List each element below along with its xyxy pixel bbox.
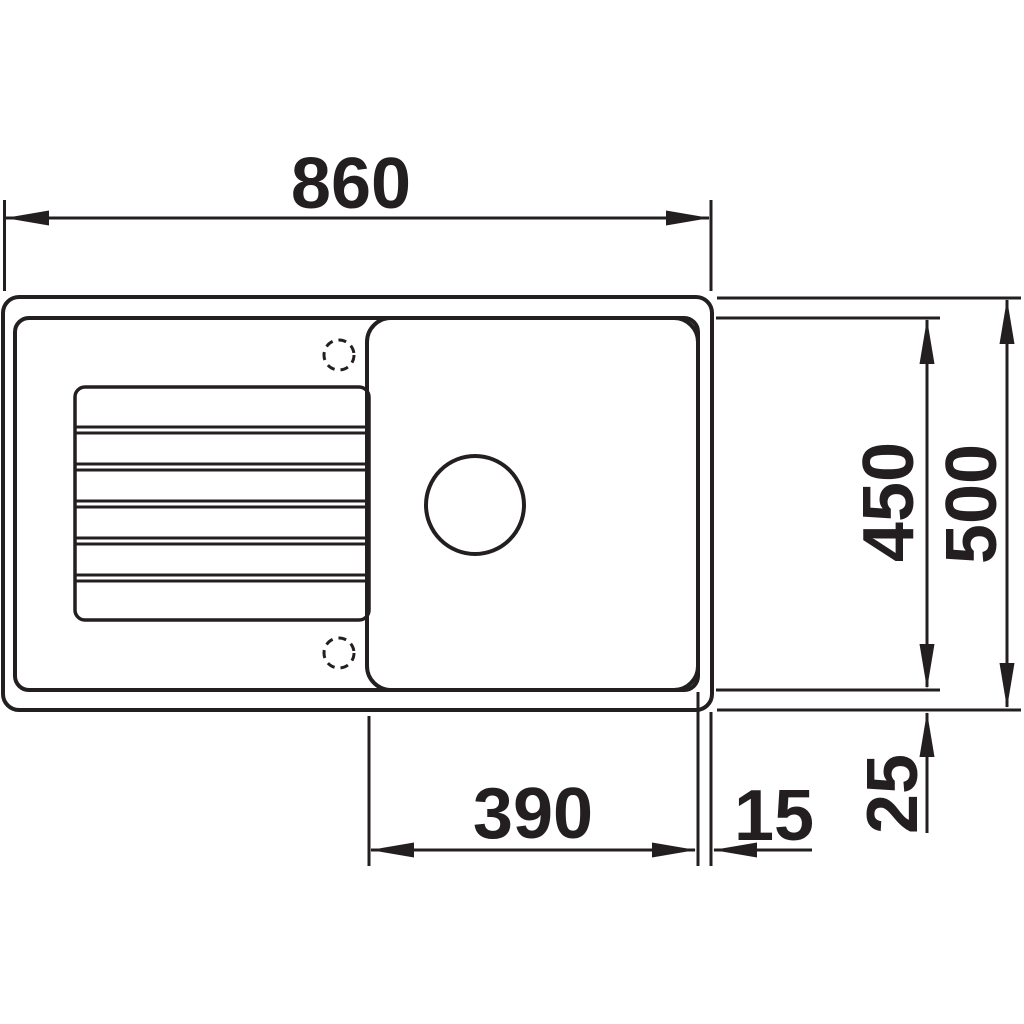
tap-hole-bottom: [324, 638, 354, 668]
drain-hole: [426, 456, 524, 554]
dimension-bottom-rim: 25: [853, 712, 935, 834]
sink-plan-view: [3, 297, 712, 710]
dimension-label-inner-depth: 450: [849, 442, 929, 562]
sink-outer-edge: [3, 297, 712, 710]
drawing-svg: 860 450 500 390: [0, 0, 1024, 1024]
arrowhead-left: [370, 843, 414, 858]
bowl-outline: [367, 318, 698, 690]
dimension-label-overall-depth: 500: [932, 444, 1012, 564]
sink-rim-inner-edge: [15, 318, 698, 690]
arrowhead-down: [920, 644, 935, 689]
dimension-right-rim: 15: [713, 776, 814, 858]
dimension-bowl-width: 390: [369, 692, 711, 866]
drainboard-panel: [75, 387, 369, 620]
arrowhead-up: [920, 712, 935, 757]
arrowhead-up: [920, 319, 935, 364]
dimension-label-overall-width: 860: [291, 144, 411, 224]
arrowhead-up: [1000, 299, 1015, 344]
dimension-label-bowl-width: 390: [473, 774, 593, 854]
dimension-label-bottom-rim: 25: [853, 754, 933, 834]
arrowhead-right: [666, 211, 710, 226]
tap-hole-top: [324, 340, 354, 370]
dimension-overall-width: 860: [5, 144, 712, 291]
arrowhead-left: [5, 211, 49, 226]
dimension-label-right-rim: 15: [734, 776, 814, 856]
arrowhead-down: [1000, 663, 1015, 708]
sink-technical-drawing: 860 450 500 390: [0, 0, 1024, 1024]
drainboard: [75, 387, 369, 620]
dimension-inner-depth: 450: [716, 318, 940, 690]
arrowhead-right: [652, 843, 696, 858]
